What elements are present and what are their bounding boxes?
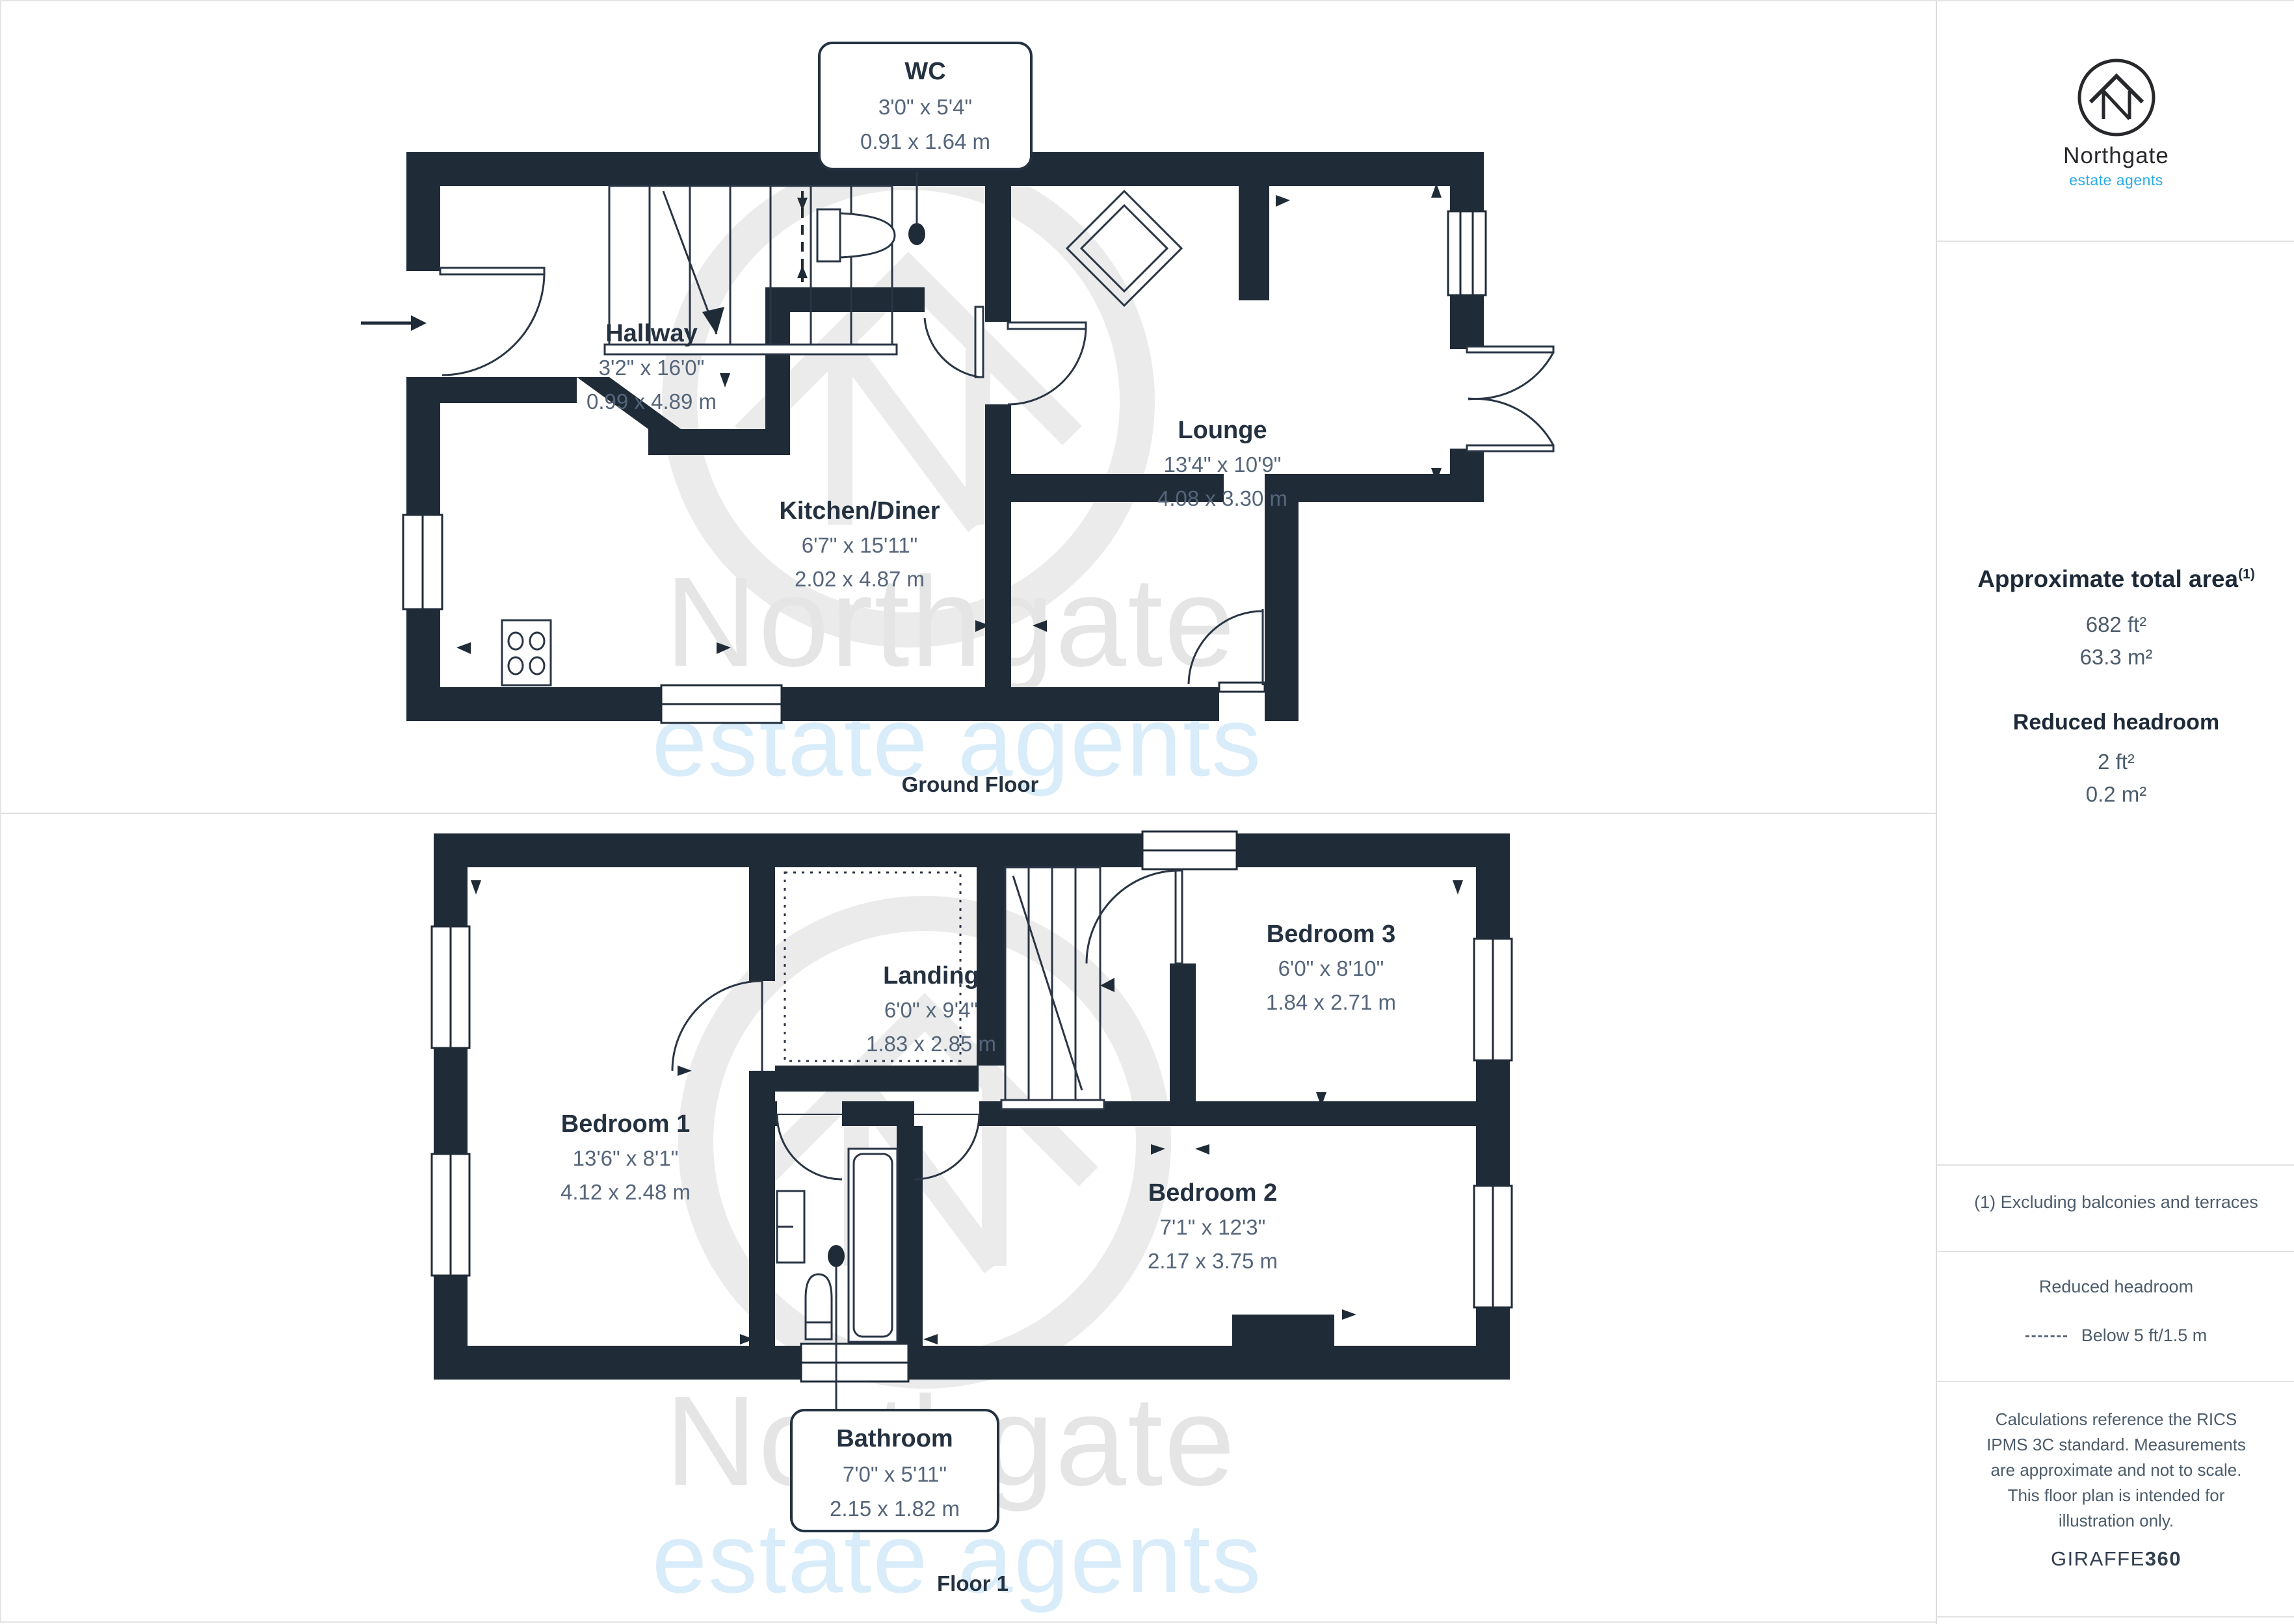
room-size-metric: 1.84 x 2.71 m: [1266, 986, 1396, 1019]
room-name: Bedroom 2: [1148, 1175, 1278, 1211]
room-label-hallway: Hallway 3'2" x 16'0" 0.99 x 4.89 m: [587, 316, 717, 419]
room-size-metric: 2.17 x 3.75 m: [1148, 1244, 1278, 1278]
room-size-metric: 0.99 x 4.89 m: [587, 385, 717, 419]
disclaimer-text: Calculations reference the RICS IPMS 3C …: [1976, 1407, 2257, 1534]
room-label-landing: Landing 6'0" x 9'4" 1.83 x 2.85 m: [866, 958, 996, 1061]
room-label-bedroom-3: Bedroom 3 6'0" x 8'10" 1.84 x 2.71 m: [1266, 917, 1396, 1019]
room-name: Bathroom: [793, 1421, 997, 1457]
room-name: Bedroom 3: [1266, 917, 1396, 952]
legend-value: Below 5 ft/1.5 m: [2081, 1326, 2208, 1345]
reduced-headroom-metric: 0.2 m²: [1937, 778, 2294, 811]
room-size-metric: 2.02 x 4.87 m: [779, 562, 940, 596]
stairs-direction-arrow: [1100, 978, 1114, 992]
room-size-metric: 1.83 x 2.85 m: [866, 1027, 996, 1061]
kitchen-hob: [502, 620, 551, 685]
agency-tagline: estate agents: [1937, 172, 2294, 189]
sidebar-divider: [1937, 1251, 2294, 1252]
area-title-text: Approximate total area: [1977, 566, 2238, 592]
agency-logo: Northgate estate agents: [1937, 52, 2294, 189]
shower-tray: [1067, 191, 1181, 306]
room-size-imperial: 7'0" x 5'11": [793, 1457, 997, 1491]
reduced-headroom-title: Reduced headroom: [1937, 710, 2294, 735]
area-title-footnote-marker: (1): [2238, 567, 2255, 582]
room-name: Hallway: [587, 316, 717, 351]
room-size-imperial: 13'6" x 8'1": [560, 1142, 691, 1175]
room-size-imperial: 6'0" x 9'4": [866, 993, 996, 1027]
area-value-metric: 63.3 m²: [1937, 641, 2294, 674]
sidebar-divider: [1937, 1381, 2294, 1382]
room-size-metric: 4.08 x 3.30 m: [1157, 482, 1287, 516]
room-name: Kitchen/Diner: [779, 493, 940, 529]
room-size-metric: 2.15 x 1.82 m: [793, 1491, 997, 1526]
room-callout-wc: WC 3'0" x 5'4" 0.91 x 1.64 m: [818, 42, 1033, 170]
room-callout-bathroom: Bathroom 7'0" x 5'11" 2.15 x 1.82 m: [790, 1409, 999, 1532]
room-label-kitchen-diner: Kitchen/Diner 6'7" x 15'11" 2.02 x 4.87 …: [779, 493, 940, 596]
floor-caption-ground: Ground Floor: [902, 772, 1039, 797]
first-floor-stairs: [1001, 867, 1104, 1109]
floorplan-page: { "watermark": {"name": "Northgate", "ta…: [0, 0, 2294, 1623]
room-size-imperial: 6'7" x 15'11": [779, 529, 940, 562]
room-size-imperial: 3'0" x 5'4": [821, 90, 1030, 124]
reduced-headroom-imperial: 2 ft²: [1937, 746, 2294, 778]
room-size-metric: 4.12 x 2.48 m: [560, 1175, 691, 1209]
room-size-metric: 0.91 x 1.64 m: [821, 124, 1030, 159]
area-value-imperial: 682 ft²: [1937, 609, 2294, 641]
reduced-headroom-legend: Reduced headroom Below 5 ft/1.5 m: [1937, 1277, 2294, 1346]
agency-logo-icon: [2071, 52, 2162, 143]
room-name: Landing: [866, 958, 996, 993]
floorplan-canvas: Northgate estate agents: [0, 0, 2294, 1623]
section-divider: [1, 813, 1936, 814]
room-label-lounge: Lounge 13'4" x 10'9" 4.08 x 3.30 m: [1157, 413, 1287, 516]
entrance-arrow-icon: [361, 315, 427, 331]
room-name: Lounge: [1157, 413, 1287, 448]
room-name: WC: [821, 53, 1030, 90]
sidebar-divider: [1937, 241, 2294, 242]
room-size-imperial: 7'1" x 12'3": [1148, 1211, 1278, 1244]
sidebar-divider: [1937, 1164, 2294, 1166]
area-title: Approximate total area(1): [1937, 566, 2294, 593]
first-floor-section: Northgate estate agents: [1, 814, 1936, 1624]
area-summary: Approximate total area(1) 682 ft² 63.3 m…: [1937, 566, 2294, 811]
giraffe360-brand: GIRAFFE: [2051, 1547, 2145, 1570]
sidebar-divider: [1937, 1616, 2294, 1617]
room-name: Bedroom 1: [560, 1107, 691, 1142]
room-size-imperial: 3'2" x 16'0": [587, 351, 717, 385]
ground-floor-windows: [403, 211, 1486, 723]
giraffe360-logo: GIRAFFE360: [1937, 1547, 2294, 1571]
room-size-imperial: 6'0" x 8'10": [1266, 952, 1396, 986]
room-size-imperial: 13'4" x 10'9": [1157, 448, 1287, 482]
room-label-bedroom-1: Bedroom 1 13'6" x 8'1" 4.12 x 2.48 m: [560, 1107, 691, 1209]
ground-floor-walls: [406, 152, 1484, 721]
legend-title: Reduced headroom: [1937, 1277, 2294, 1297]
giraffe360-suffix: 360: [2145, 1547, 2182, 1570]
floor-caption-floor1: Floor 1: [937, 1571, 1009, 1596]
footnote-exclusions: (1) Excluding balconies and terraces: [1937, 1192, 2294, 1212]
ground-floor-section: Northgate estate agents: [1, 1, 1936, 813]
dashed-line-icon: [2025, 1335, 2067, 1337]
plans-area: Northgate estate agents: [1, 1, 1936, 1624]
agency-name: Northgate: [1937, 143, 2294, 169]
info-sidebar: Northgate estate agents Approximate tota…: [1936, 1, 2294, 1624]
room-label-bedroom-2: Bedroom 2 7'1" x 12'3" 2.17 x 3.75 m: [1148, 1175, 1278, 1278]
